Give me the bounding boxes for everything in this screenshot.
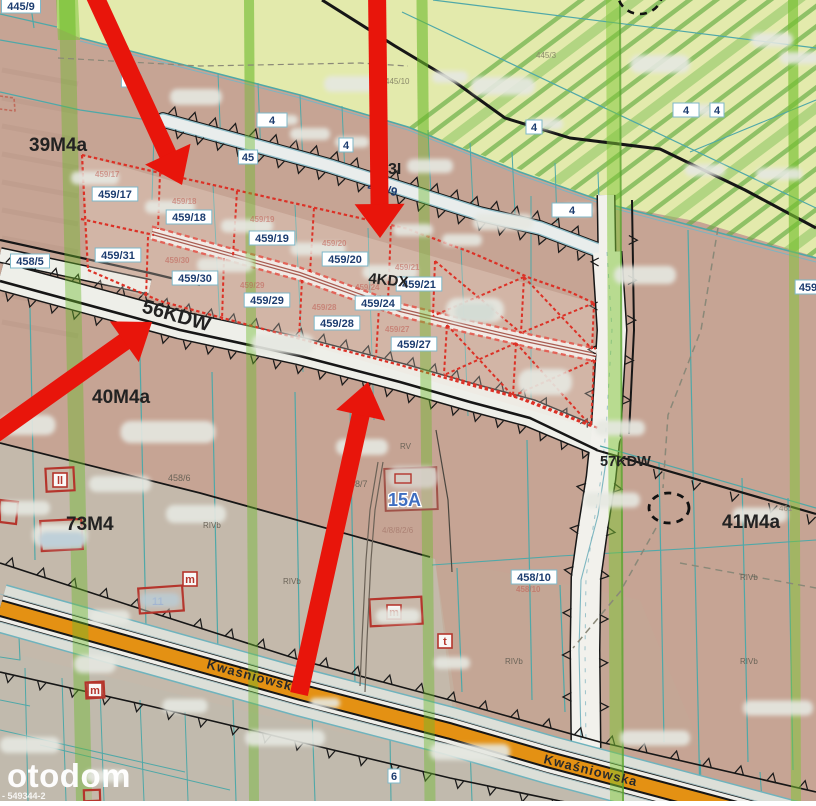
svg-text:3I: 3I xyxy=(388,161,401,178)
svg-text:445/3: 445/3 xyxy=(536,51,557,60)
svg-text:459/17: 459/17 xyxy=(98,189,132,201)
svg-text:459/18: 459/18 xyxy=(172,212,206,224)
svg-text:57KDW: 57KDW xyxy=(600,454,651,470)
svg-text:otodom: otodom xyxy=(7,757,131,794)
svg-text:459/28: 459/28 xyxy=(320,318,354,330)
svg-text:m: m xyxy=(185,574,195,586)
svg-text:RIVb: RIVb xyxy=(505,657,523,666)
svg-text:73M4: 73M4 xyxy=(66,514,114,535)
svg-text:458/6: 458/6 xyxy=(168,473,191,483)
svg-text:459/29: 459/29 xyxy=(250,295,284,307)
svg-text:4: 4 xyxy=(531,122,538,134)
svg-text:459/21: 459/21 xyxy=(395,263,420,272)
svg-text:459/27: 459/27 xyxy=(385,325,410,334)
svg-text:ll: ll xyxy=(57,475,63,487)
svg-text:RIVb: RIVb xyxy=(740,573,758,582)
svg-text:41M4a: 41M4a xyxy=(722,512,781,533)
svg-text:4: 4 xyxy=(569,205,576,217)
svg-text:445/10: 445/10 xyxy=(385,77,410,86)
svg-text:t: t xyxy=(443,636,447,648)
svg-text:459/29: 459/29 xyxy=(240,281,265,290)
svg-text:461: 461 xyxy=(779,504,793,513)
svg-text:459/20: 459/20 xyxy=(328,254,362,266)
svg-text:40M4a: 40M4a xyxy=(92,387,151,408)
svg-text:4: 4 xyxy=(269,115,276,127)
svg-text:459/28: 459/28 xyxy=(312,303,337,312)
svg-text:4: 4 xyxy=(714,105,721,117)
svg-text:458/10: 458/10 xyxy=(516,585,541,594)
svg-text:459/27: 459/27 xyxy=(397,339,431,351)
svg-text:RIVb: RIVb xyxy=(283,577,301,586)
svg-text:445/9: 445/9 xyxy=(7,1,35,13)
svg-text:458/10: 458/10 xyxy=(517,572,551,584)
svg-text:6: 6 xyxy=(391,771,397,783)
svg-text:39M4a: 39M4a xyxy=(29,135,88,156)
svg-text:459/18: 459/18 xyxy=(172,197,197,206)
svg-text:459/30: 459/30 xyxy=(178,273,212,285)
svg-text:459/19: 459/19 xyxy=(250,215,275,224)
svg-text:RIVb: RIVb xyxy=(203,521,221,530)
svg-text:459/31: 459/31 xyxy=(101,250,135,262)
svg-text:459/20: 459/20 xyxy=(322,239,347,248)
svg-text:4: 4 xyxy=(343,140,350,152)
svg-text:- 549344-2: - 549344-2 xyxy=(2,791,46,801)
svg-text:15A: 15A xyxy=(388,490,421,510)
svg-text:45: 45 xyxy=(242,152,254,164)
svg-text:458/5: 458/5 xyxy=(16,256,44,268)
svg-text:459/19: 459/19 xyxy=(255,233,289,245)
svg-text:4/8/8/2/6: 4/8/8/2/6 xyxy=(382,526,414,535)
svg-text:459/24: 459/24 xyxy=(361,298,396,310)
svg-text:459/30: 459/30 xyxy=(165,256,190,265)
svg-text:RIVb: RIVb xyxy=(740,657,758,666)
svg-text:459/17: 459/17 xyxy=(95,170,120,179)
svg-text:m: m xyxy=(90,685,100,697)
svg-text:4: 4 xyxy=(683,105,690,117)
svg-text:RV: RV xyxy=(400,442,412,451)
svg-text:459: 459 xyxy=(799,282,816,294)
